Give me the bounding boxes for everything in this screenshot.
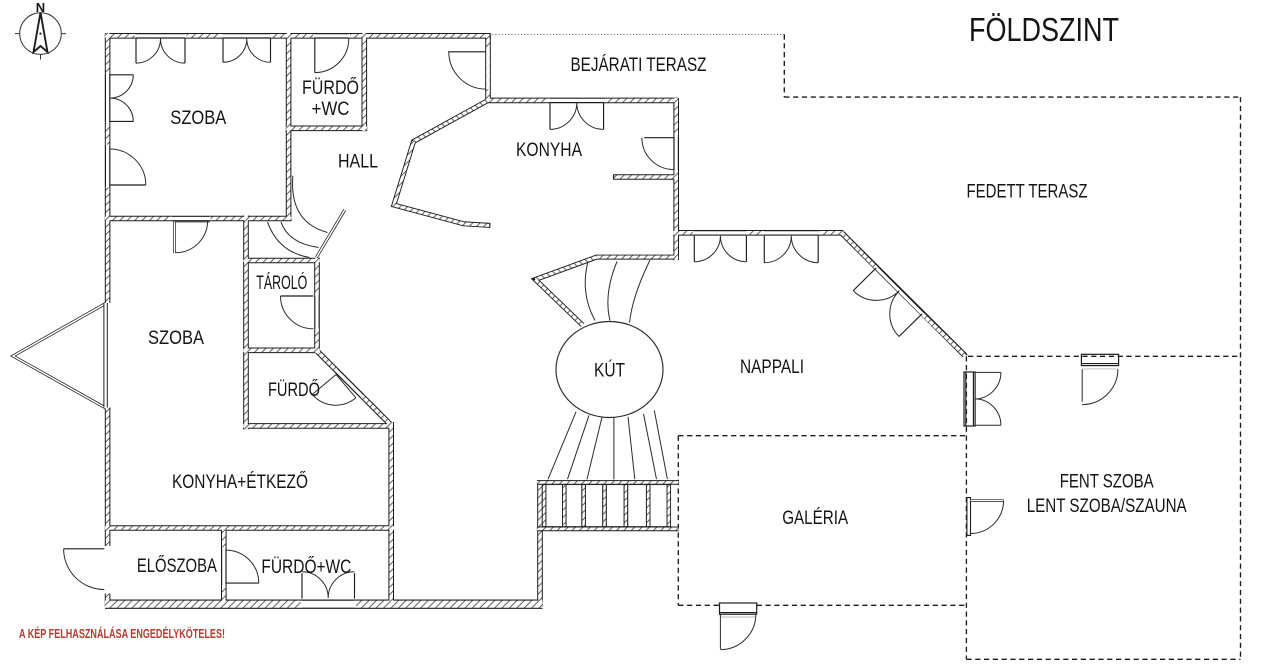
svg-text:NAPPALI: NAPPALI [740, 357, 804, 378]
svg-text:ELŐSZOBA: ELŐSZOBA [137, 555, 217, 577]
svg-text:SZOBA: SZOBA [148, 328, 204, 349]
svg-text:FENT SZOBA: FENT SZOBA [1060, 472, 1154, 493]
svg-text:LENT SZOBA/SZAUNA: LENT SZOBA/SZAUNA [1027, 496, 1187, 517]
svg-text:N: N [36, 0, 45, 15]
svg-text:FEDETT TERASZ: FEDETT TERASZ [967, 182, 1088, 203]
svg-text:FÜRDŐ: FÜRDŐ [268, 379, 320, 401]
svg-text:KONYHA: KONYHA [516, 140, 582, 161]
svg-text:KONYHA+ÉTKEZŐ: KONYHA+ÉTKEZŐ [172, 471, 308, 493]
svg-text:+WC: +WC [312, 99, 350, 120]
svg-text:HALL: HALL [338, 152, 378, 173]
svg-text:TÁROLÓ: TÁROLÓ [256, 272, 307, 294]
svg-text:A KÉP FELHASZNÁLÁSA ENGEDÉLYKÖ: A KÉP FELHASZNÁLÁSA ENGEDÉLYKÖTELES! [19, 626, 225, 641]
svg-text:FÖLDSZINT: FÖLDSZINT [969, 11, 1119, 48]
svg-text:BEJÁRATI TERASZ: BEJÁRATI TERASZ [571, 55, 707, 76]
svg-text:KÚT: KÚT [594, 360, 625, 382]
svg-text:FÜRDŐ: FÜRDŐ [302, 77, 359, 99]
svg-text:SZOBA: SZOBA [170, 108, 226, 129]
svg-text:FÜRDŐ+WC: FÜRDŐ+WC [261, 556, 351, 578]
svg-text:GALÉRIA: GALÉRIA [782, 508, 848, 529]
